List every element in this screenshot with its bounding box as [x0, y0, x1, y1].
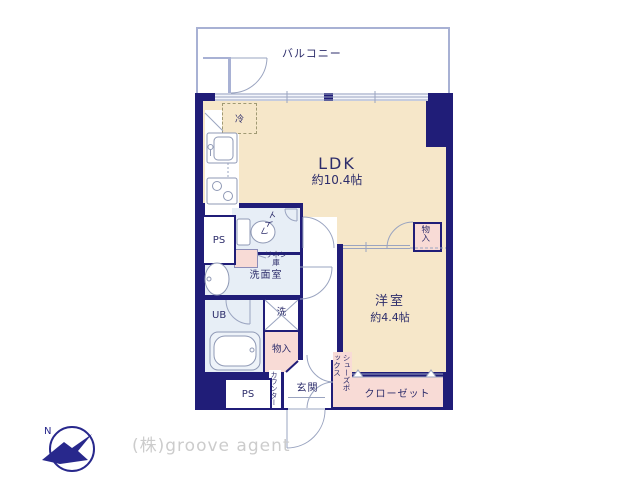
storage-lower-door [286, 361, 298, 372]
entrance-label: 玄関 [284, 383, 331, 395]
storage-right-door-arc [387, 222, 413, 248]
unit-bath-label: UB [212, 310, 226, 322]
ldk-door-arc [303, 217, 334, 248]
stove-burner-icon [224, 192, 233, 201]
washroom-door-arc [300, 267, 332, 299]
ub-door-arc [226, 300, 250, 324]
sink-faucet-icon [208, 145, 213, 150]
shoes-box-label: シューズボックス [332, 354, 351, 398]
balcony-door-arc [231, 58, 267, 93]
ldk-label: LDK [277, 155, 397, 173]
stove-icon [207, 178, 237, 204]
western-room-size-label: 約4.4帖 [340, 312, 440, 325]
window-lines [215, 94, 428, 100]
logo-letter: N [44, 426, 51, 437]
linen-label: リネン庫 [263, 251, 289, 267]
floorplan-canvas: バルコニー 冷 クローゼット PS PS [0, 0, 640, 480]
shoesbox-door-arc [307, 355, 333, 382]
storage-right-label: 物入 [419, 225, 429, 247]
company-name: (株)groove agent [132, 437, 291, 457]
vanity-faucet-icon [207, 277, 211, 281]
stove-burner-icon [213, 182, 222, 191]
sink-basin-icon [214, 137, 233, 160]
entrance-door-arc [287, 410, 325, 448]
washroom-label: 洗面室 [232, 270, 300, 282]
washer-label: 洗 [265, 308, 298, 319]
toilet-door-arc [285, 209, 297, 221]
sliding-door-lines [343, 246, 410, 249]
entrance-threshold-lines [288, 398, 325, 410]
plan-lines [0, 0, 640, 480]
western-room-label: 洋室 [340, 295, 440, 310]
bathtub-inner-icon [214, 336, 256, 366]
toilet-tank-icon [237, 219, 250, 245]
company-logo: N [20, 420, 124, 476]
storage-lower-label: 物入 [265, 345, 298, 356]
kitchen-corner-line [205, 113, 223, 131]
ldk-size-label: 約10.4帖 [277, 174, 397, 188]
bathtub-drain-icon [250, 348, 254, 352]
counter-label: カウンター [270, 371, 278, 408]
